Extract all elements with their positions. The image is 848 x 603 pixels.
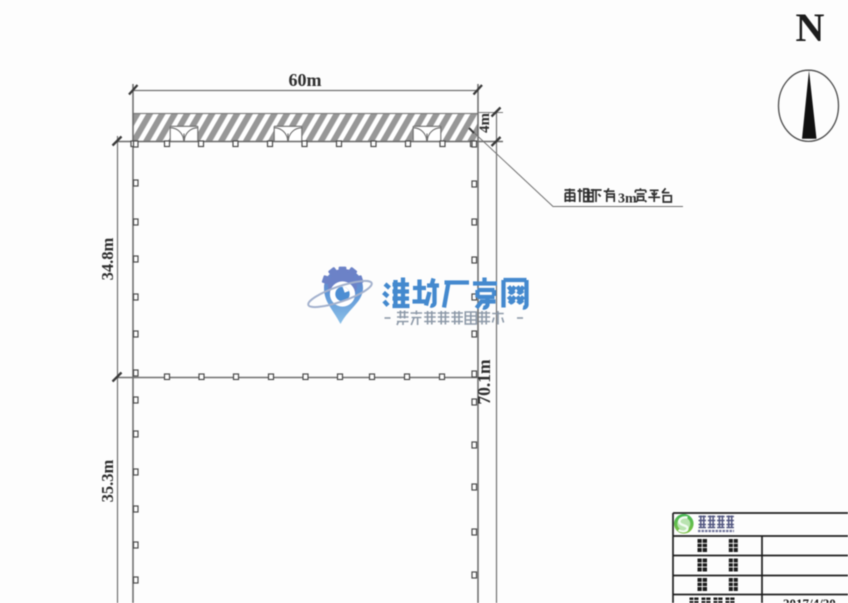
svg-text:60m: 60m xyxy=(289,70,322,90)
svg-text:4m: 4m xyxy=(477,113,493,134)
svg-text:N: N xyxy=(796,5,825,50)
svg-text:2017/4/20: 2017/4/20 xyxy=(783,596,836,603)
svg-text:3m: 3m xyxy=(618,192,637,207)
svg-text:35.3m: 35.3m xyxy=(98,459,117,502)
svg-text:34.8m: 34.8m xyxy=(98,237,117,280)
svg-text:70.1m: 70.1m xyxy=(474,359,494,405)
